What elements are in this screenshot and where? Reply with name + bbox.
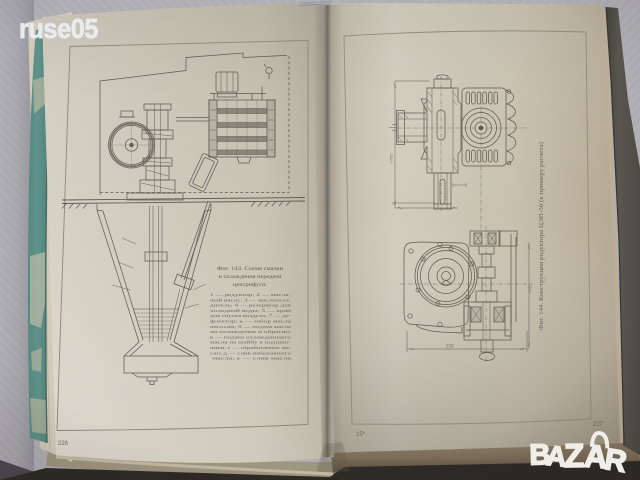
svg-text:ruse05: ruse05 [19,13,98,44]
svg-text:Z: Z [564,437,584,474]
